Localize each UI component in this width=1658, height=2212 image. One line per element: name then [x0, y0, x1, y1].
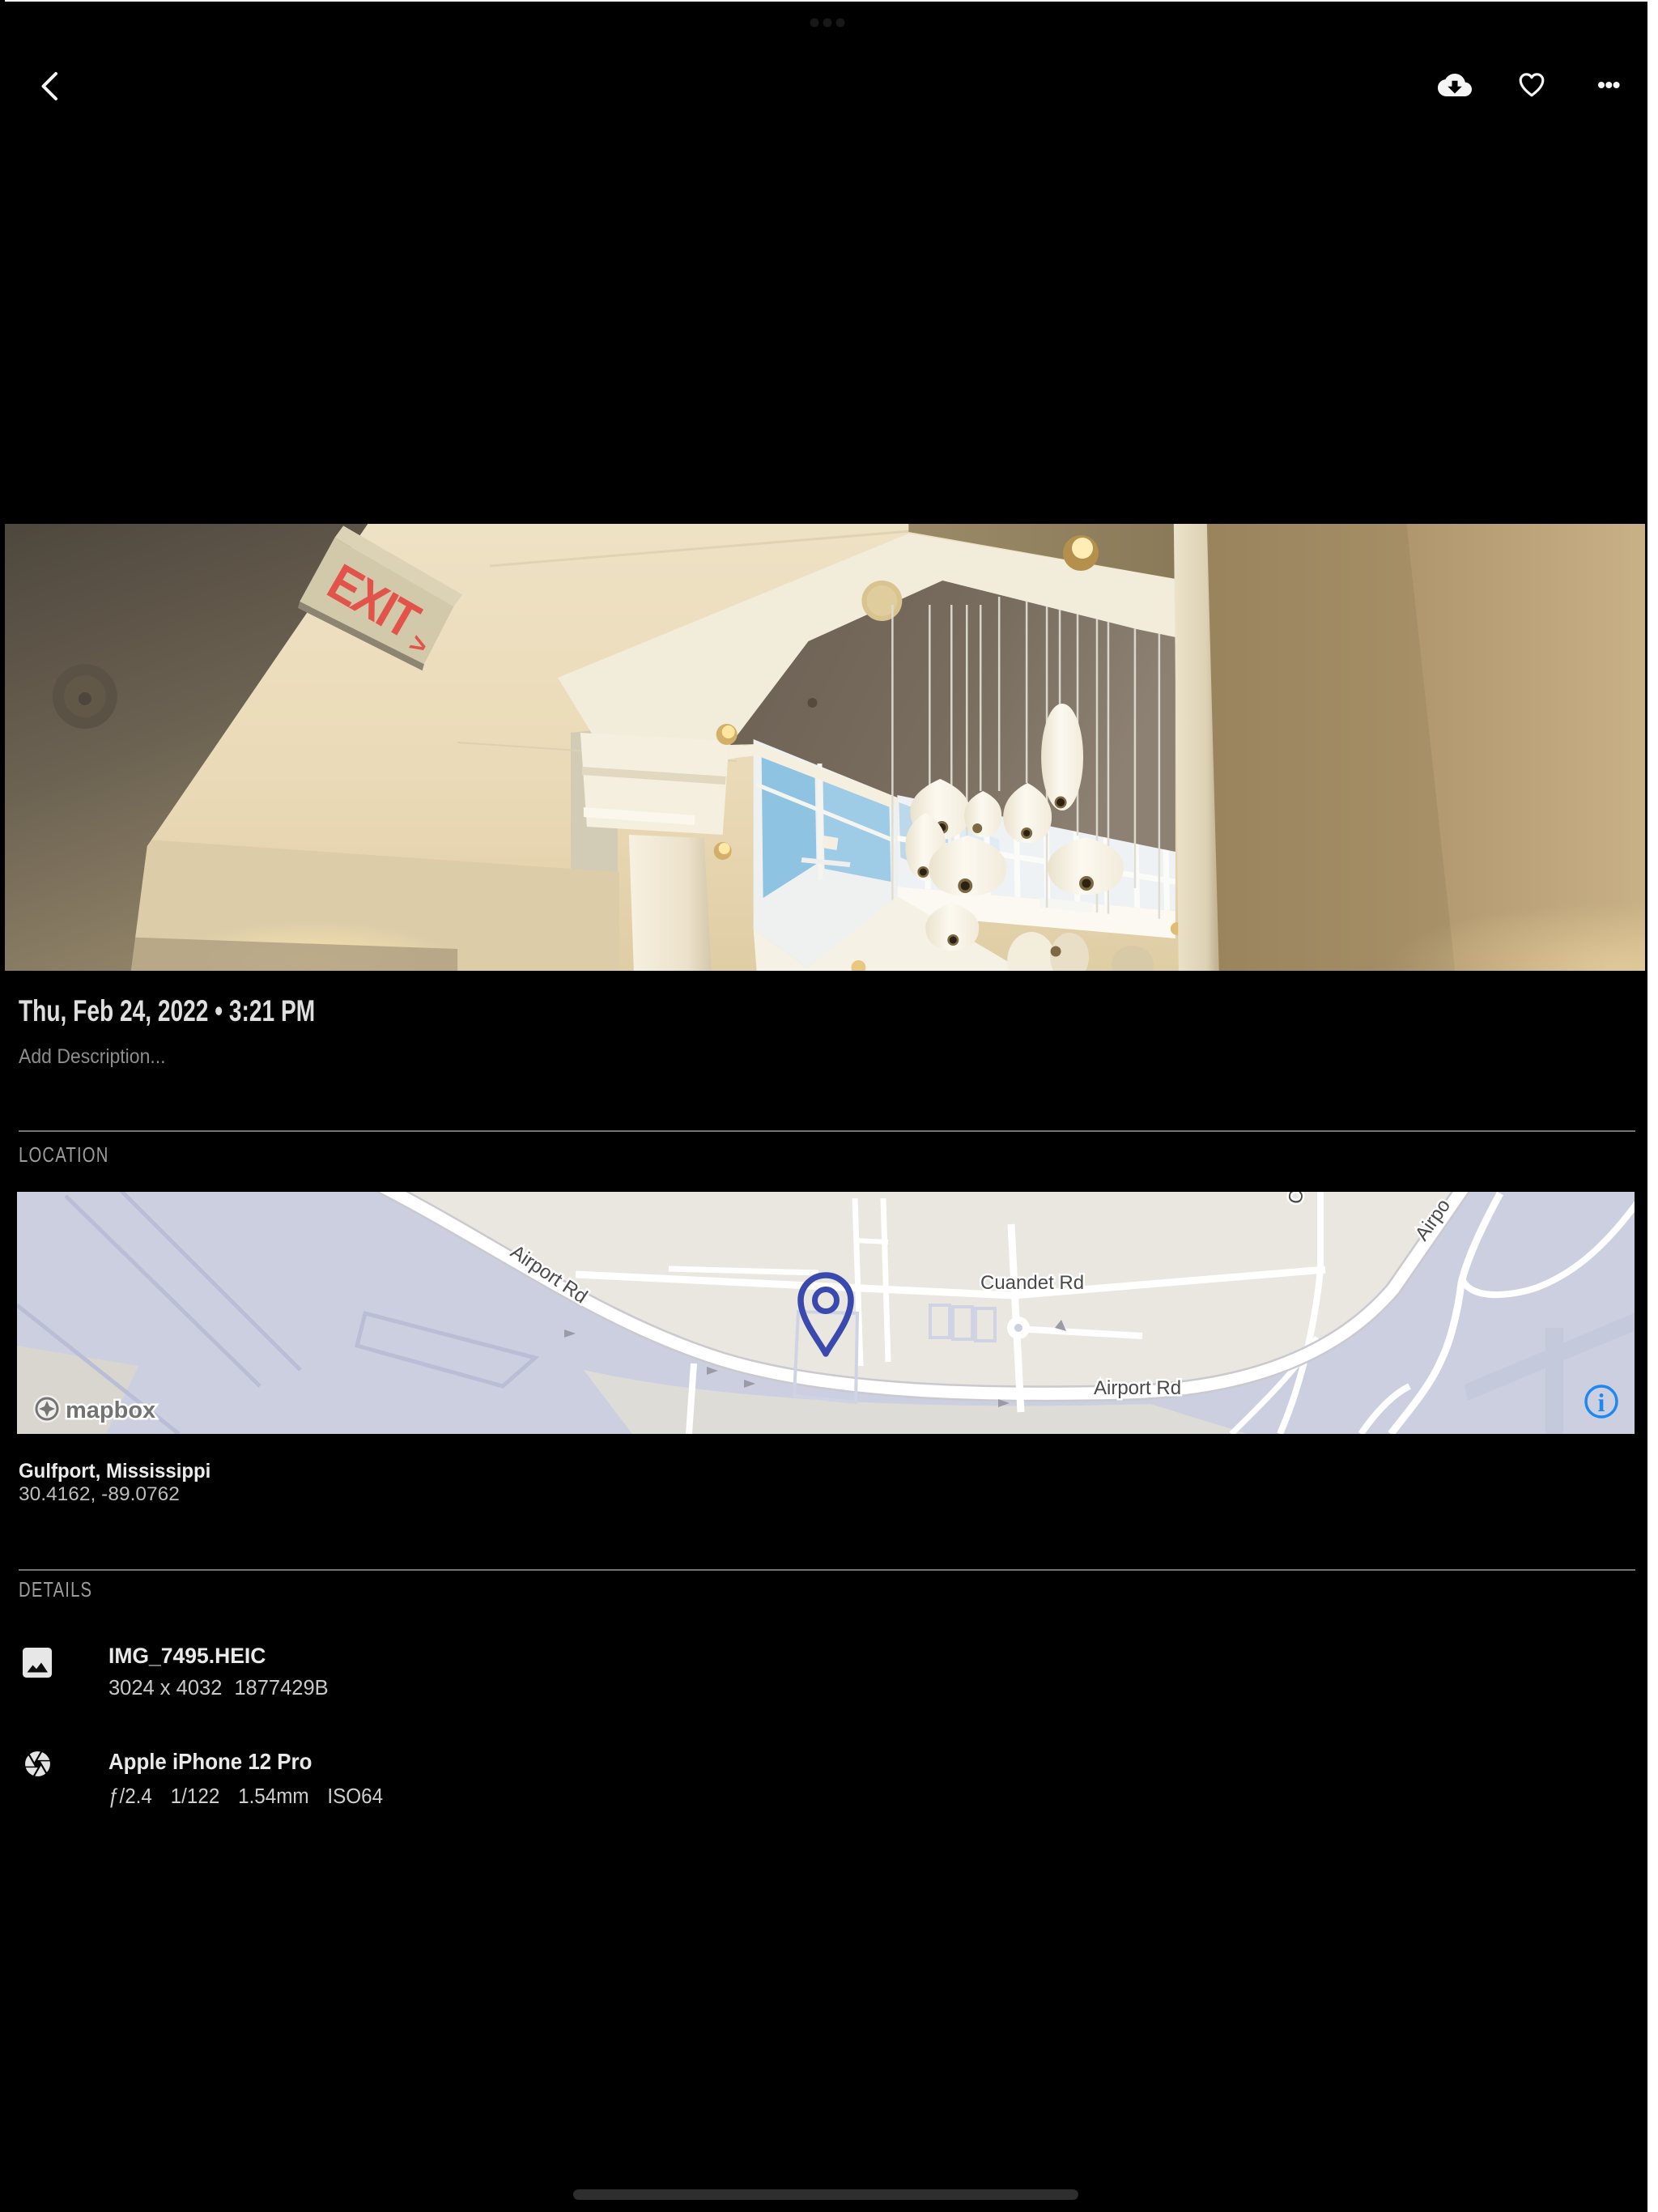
svg-text:Airport Rd: Airport Rd — [1094, 1377, 1181, 1399]
svg-text:mapbox: mapbox — [66, 1397, 155, 1423]
svg-text:Cuandet Rd: Cuandet Rd — [980, 1272, 1084, 1294]
svg-text:i: i — [1598, 1388, 1605, 1417]
